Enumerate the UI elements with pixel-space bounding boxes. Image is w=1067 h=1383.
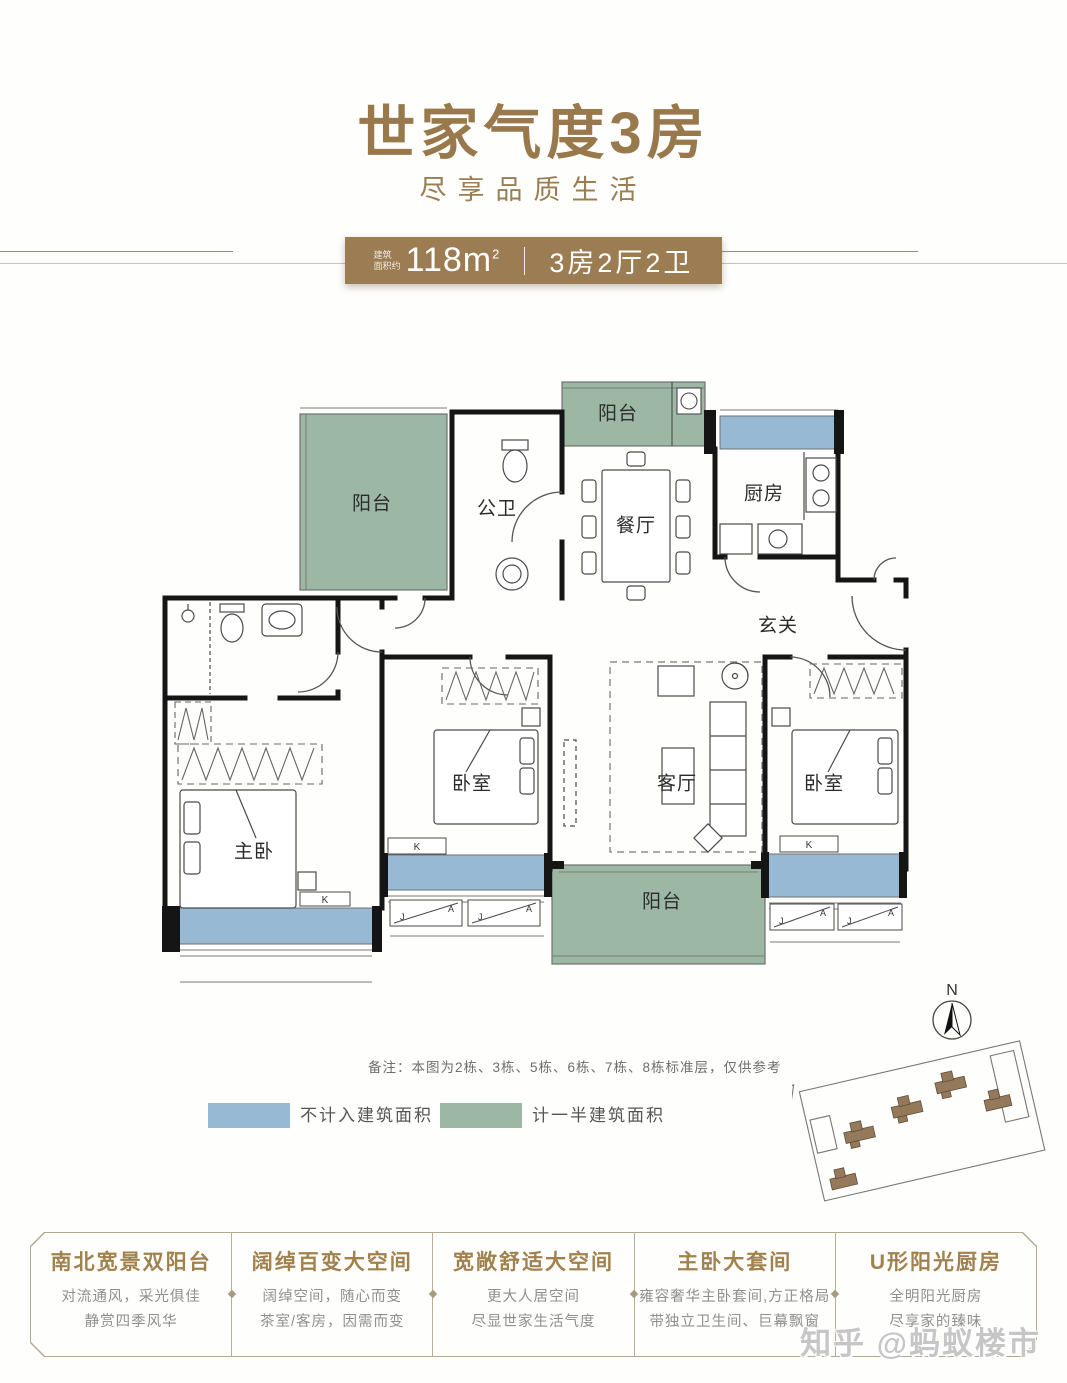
feature-line1: 对流通风，采光俱佳 <box>31 1285 231 1310</box>
bedroom-middle-bed <box>434 708 540 824</box>
room-label-master-bedroom: 主卧 <box>234 837 274 864</box>
room-label-guest-bathroom: 公卫 <box>477 494 517 521</box>
feature-title: 阔绰百变大空间 <box>232 1246 432 1276</box>
svg-text:J: J <box>400 912 405 922</box>
feature-double-balcony: 南北宽景双阳台 对流通风，采光俱佳 静赏四季风华 <box>31 1233 231 1356</box>
legend-label-green: 计一半建筑面积 <box>532 1103 665 1128</box>
svg-text:K: K <box>806 840 813 851</box>
room-label-kitchen: 厨房 <box>744 479 784 506</box>
unit-spec: 3房2厅2卫 <box>549 241 693 280</box>
feature-flexible-space: 阔绰百变大空间 阔绰空间，随心而变 茶室/客房，因需而变 <box>231 1233 432 1356</box>
page-subtitle: 尽享品质生活 <box>0 168 1067 207</box>
svg-text:J: J <box>779 916 784 926</box>
note-text: 备注：本图为2栋、3栋、5栋、6栋、7栋、8栋标准层，仅供参考 <box>368 1056 782 1076</box>
room-label-dining: 餐厅 <box>616 511 656 538</box>
feature-line1: 阔绰空间，随心而变 <box>232 1285 432 1310</box>
floorplan-drawing: K K K JA JA JA JA <box>150 352 930 1017</box>
room-label-balcony-bottom: 阳台 <box>642 887 682 914</box>
room-label-foyer: 玄关 <box>758 611 798 638</box>
svg-text:J: J <box>478 912 483 922</box>
area-label-line1: 建筑 <box>374 250 401 260</box>
legend-swatch-blue <box>208 1103 290 1128</box>
feature-line1: 全明阳光厨房 <box>836 1285 1036 1310</box>
area-label: 建筑 面积约 <box>374 250 401 271</box>
page-title: 世家气度3房 <box>0 86 1067 170</box>
deco-line-right-light <box>722 263 1067 264</box>
room-label-bedroom-right: 卧室 <box>804 769 844 796</box>
area-exponent: 2 <box>492 247 500 262</box>
feature-spacious: 宽敞舒适大空间 更大人居空间 尽显世家生活气度 <box>432 1233 633 1356</box>
spec-banner: 建筑 面积约 118m2 3房2厅2卫 <box>345 237 722 284</box>
feature-line2: 静赏四季风华 <box>31 1310 231 1335</box>
svg-text:A: A <box>888 908 894 918</box>
svg-text:A: A <box>448 904 454 914</box>
living-room-furniture <box>564 662 762 852</box>
deco-line-left-light <box>0 263 345 264</box>
legend-swatch-green <box>440 1103 522 1128</box>
room-label-bedroom-middle: 卧室 <box>452 769 492 796</box>
feature-line1: 雍容奢华主卧套间,方正格局 <box>635 1285 835 1310</box>
siteplan-drawing: N <box>792 975 1064 1210</box>
svg-text:A: A <box>820 908 826 918</box>
area-number: 118m <box>406 241 493 279</box>
watermark: 知乎 @蚂蚁楼市 <box>800 1318 1041 1363</box>
deco-line-right-dark <box>722 251 918 252</box>
svg-text:A: A <box>526 904 532 914</box>
feature-line2: 茶室/客房，因需而变 <box>232 1310 432 1335</box>
compass-icon: N <box>933 982 971 1039</box>
room-label-balcony-top-left: 阳台 <box>352 489 392 516</box>
svg-text:N: N <box>946 982 958 999</box>
master-bath-fixtures <box>182 602 302 694</box>
feature-title: U形阳光厨房 <box>836 1246 1036 1276</box>
siteplan: N <box>792 975 1064 1210</box>
svg-text:K: K <box>322 895 329 906</box>
feature-line1: 更大人居空间 <box>433 1285 633 1310</box>
area-label-line2: 面积约 <box>374 261 401 271</box>
feature-title: 南北宽景双阳台 <box>31 1246 231 1276</box>
deco-line-left-dark <box>0 251 233 252</box>
feature-body: 阔绰空间，随心而变 茶室/客房，因需而变 <box>232 1285 432 1336</box>
banner-divider <box>524 247 525 275</box>
feature-body: 更大人居空间 尽显世家生活气度 <box>433 1285 633 1336</box>
room-label-balcony-top-middle: 阳台 <box>598 399 638 426</box>
svg-text:J: J <box>847 916 852 926</box>
feature-body: 对流通风，采光俱佳 静赏四季风华 <box>31 1285 231 1336</box>
legend-label-blue: 不计入建筑面积 <box>300 1103 433 1128</box>
floorplan-poster: 世家气度3房 尽享品质生活 建筑 面积约 118m2 3房2厅2卫 <box>0 0 1067 1383</box>
area-value: 118m2 <box>406 241 501 280</box>
site-buildings <box>812 1059 1021 1189</box>
floorplan: K K K JA JA JA JA 阳台 公卫 <box>150 352 930 1017</box>
feature-title: 主卧大套间 <box>635 1246 835 1276</box>
feature-title: 宽敞舒适大空间 <box>433 1246 633 1276</box>
svg-text:K: K <box>414 842 421 853</box>
feature-line2: 尽显世家生活气度 <box>433 1310 633 1335</box>
room-label-living-room: 客厅 <box>657 769 697 796</box>
bedroom-right-bed <box>772 708 898 824</box>
